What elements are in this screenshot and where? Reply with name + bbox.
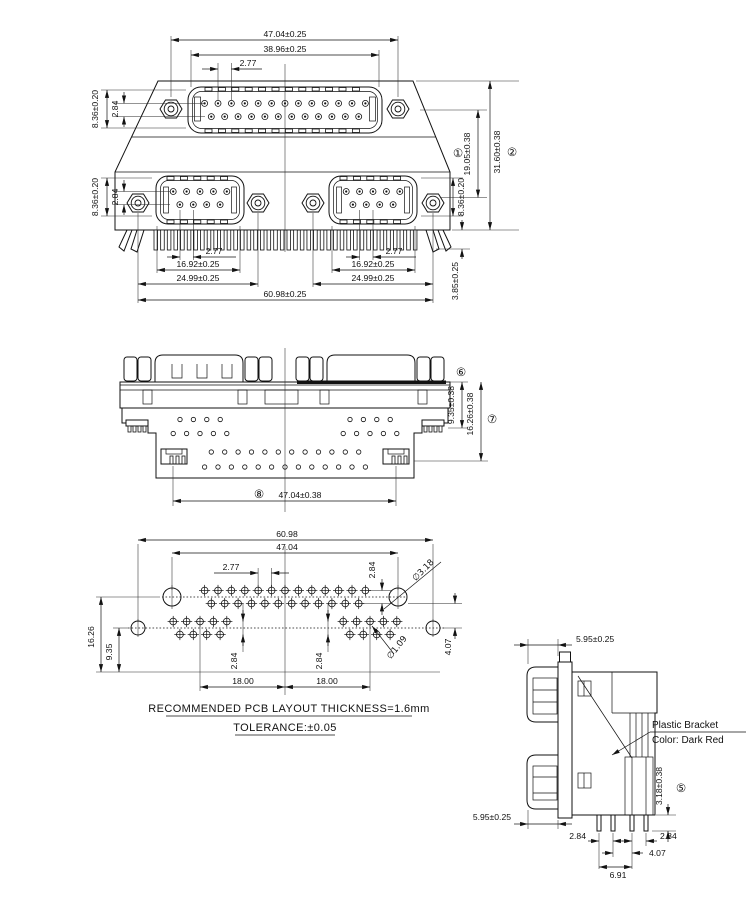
hole-row-a2 — [348, 417, 393, 421]
front-dimensions: 47.04±0.25 38.96±0.25 2.77 8.36±0.20 2.8… — [90, 29, 519, 303]
dim-2499-l: 24.99±0.25 — [177, 273, 220, 283]
dim-595-bot: 5.95±0.25 — [473, 812, 511, 822]
dim-1905: 19.05±0.38 — [462, 132, 472, 175]
dim-691: 6.91 — [610, 870, 627, 880]
balloon-7: ⑦ — [487, 412, 497, 426]
front-view: 47.04±0.25 38.96±0.25 2.77 8.36±0.20 2.8… — [90, 29, 519, 303]
dim-284-side-l: 2.84 — [569, 831, 586, 841]
callout-color: Color: Dark Red — [652, 735, 724, 746]
dim-6098p: 60.98 — [276, 529, 298, 539]
foot-hatch — [392, 456, 407, 464]
bracket-body — [572, 672, 657, 815]
dim-277p: 2.77 — [223, 562, 240, 572]
dim-935p: 9.35 — [104, 643, 114, 660]
gasket-strip — [297, 381, 446, 385]
dim-4704p: 47.04 — [276, 542, 298, 552]
solder-pin — [644, 815, 648, 831]
solder-pin — [611, 815, 615, 831]
bottom-hood — [527, 755, 558, 809]
balloon-2: ② — [507, 145, 517, 159]
dim-4704b: 47.04±0.38 — [279, 490, 322, 500]
pcb-db9r-row1 — [338, 616, 403, 627]
pcb-note-line1: RECOMMENDED PCB LAYOUT THICKNESS=1.6mm — [148, 703, 429, 715]
dim-595-top: 5.95±0.25 — [576, 634, 614, 644]
pcb-db9l-row1 — [168, 616, 233, 627]
dim-1626p: 16.26 — [86, 626, 96, 648]
dim-1692-l: 16.92±0.25 — [177, 259, 220, 269]
side-view: 5.95±0.25 5.95±0.25 Plastic Bracket Colo… — [473, 634, 746, 880]
balloon-6: ⑥ — [456, 365, 466, 379]
dim-277-db25: 2.77 — [240, 58, 257, 68]
balloon-8: ⑧ — [254, 487, 264, 501]
dim-277-db9l: 2.77 — [206, 246, 223, 256]
dim-284-l-p: 2.84 — [229, 652, 239, 669]
balloon-5: ⑤ — [676, 781, 686, 795]
dim-3896: 38.96±0.25 — [264, 44, 307, 54]
clip-teeth — [424, 426, 442, 432]
dim-dia318: ∅3.18 — [411, 558, 437, 584]
pcb-note-line2: TOLERANCE:±0.05 — [233, 722, 337, 734]
board-lock-leg — [426, 230, 439, 252]
callout-plastic-bracket: Plastic Bracket — [652, 720, 718, 731]
dim-2499-r: 24.99±0.25 — [352, 273, 395, 283]
pcb-dimensions: 60.98 47.04 2.77 2.84 ∅3.18 16.26 9.35 2… — [86, 529, 462, 691]
dim-284-bot: 2.84 — [110, 188, 120, 205]
dim-284-r-p: 2.84 — [314, 652, 324, 669]
hole-row-b2 — [341, 431, 399, 435]
dim-277-db9r: 2.77 — [386, 246, 403, 256]
pcb-layout-view: 60.98 47.04 2.77 2.84 ∅3.18 16.26 9.35 2… — [86, 529, 462, 735]
solder-pin — [630, 815, 634, 831]
dim-1626: 16.26±0.38 — [465, 392, 475, 435]
hole-row-a — [178, 417, 223, 421]
dim-3160: 31.60±0.38 — [492, 130, 502, 173]
jackscrew-icon — [302, 194, 324, 212]
jackscrew-icon — [127, 194, 149, 212]
dim-18-r: 18.00 — [316, 676, 338, 686]
bottom-view: ⑥ 9.35±0.38 16.26±0.38 ⑦ ⑧ 47.04±0.38 — [120, 348, 497, 512]
dim-284-top: 2.84 — [110, 100, 120, 117]
board-lock-leg — [119, 230, 132, 251]
dim-4704: 47.04±0.25 — [264, 29, 307, 39]
engineering-drawing-canvas: 47.04±0.25 38.96±0.25 2.77 8.36±0.20 2.8… — [0, 0, 750, 900]
board-lock-leg — [438, 230, 451, 251]
dim-385: 3.85±0.25 — [450, 262, 460, 300]
foot-hatch — [170, 456, 185, 464]
mounting-flange — [558, 662, 572, 818]
db9r-backshell — [327, 355, 415, 382]
hole-row-b — [171, 431, 229, 435]
dim-407-side: 4.07 — [649, 848, 666, 858]
dim-836-right: 8.36±0.20 — [456, 178, 466, 216]
jackscrew-icon — [387, 100, 409, 118]
dim-935: 9.35±0.38 — [446, 386, 456, 424]
board-lock-leg — [131, 230, 144, 252]
dim-18-l: 18.00 — [232, 676, 254, 686]
dim-836-top: 8.36±0.20 — [90, 90, 100, 128]
side-dimensions: 5.95±0.25 5.95±0.25 Plastic Bracket Colo… — [473, 634, 746, 880]
jackscrew-icon — [160, 100, 182, 118]
dim-6098: 60.98±0.25 — [264, 289, 307, 299]
dim-284-top-p: 2.84 — [367, 561, 377, 578]
drawing-sheet: 47.04±0.25 38.96±0.25 2.77 8.36±0.20 2.8… — [0, 0, 750, 900]
dim-1692-r: 16.92±0.25 — [352, 259, 395, 269]
dim-318: 3.18±0.38 — [654, 767, 664, 805]
dim-836-bot: 8.36±0.20 — [90, 178, 100, 216]
dim-407p: 4.07 — [443, 638, 453, 655]
jackscrew-icon — [422, 194, 444, 212]
jackscrew-icon — [247, 194, 269, 212]
dim-284-side-r: 2.84 — [660, 831, 677, 841]
clip-teeth — [128, 426, 146, 432]
solder-pin — [597, 815, 601, 831]
